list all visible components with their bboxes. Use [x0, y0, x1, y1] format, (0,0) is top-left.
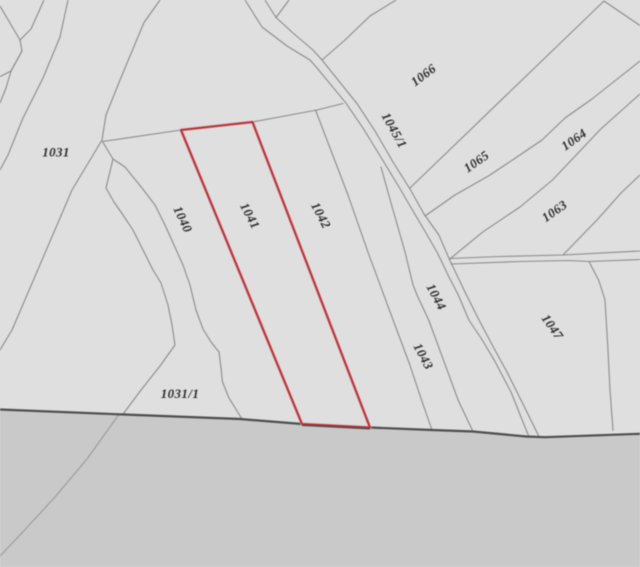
svg-text:1031/1: 1031/1: [161, 386, 200, 401]
svg-text:1031: 1031: [42, 145, 70, 160]
